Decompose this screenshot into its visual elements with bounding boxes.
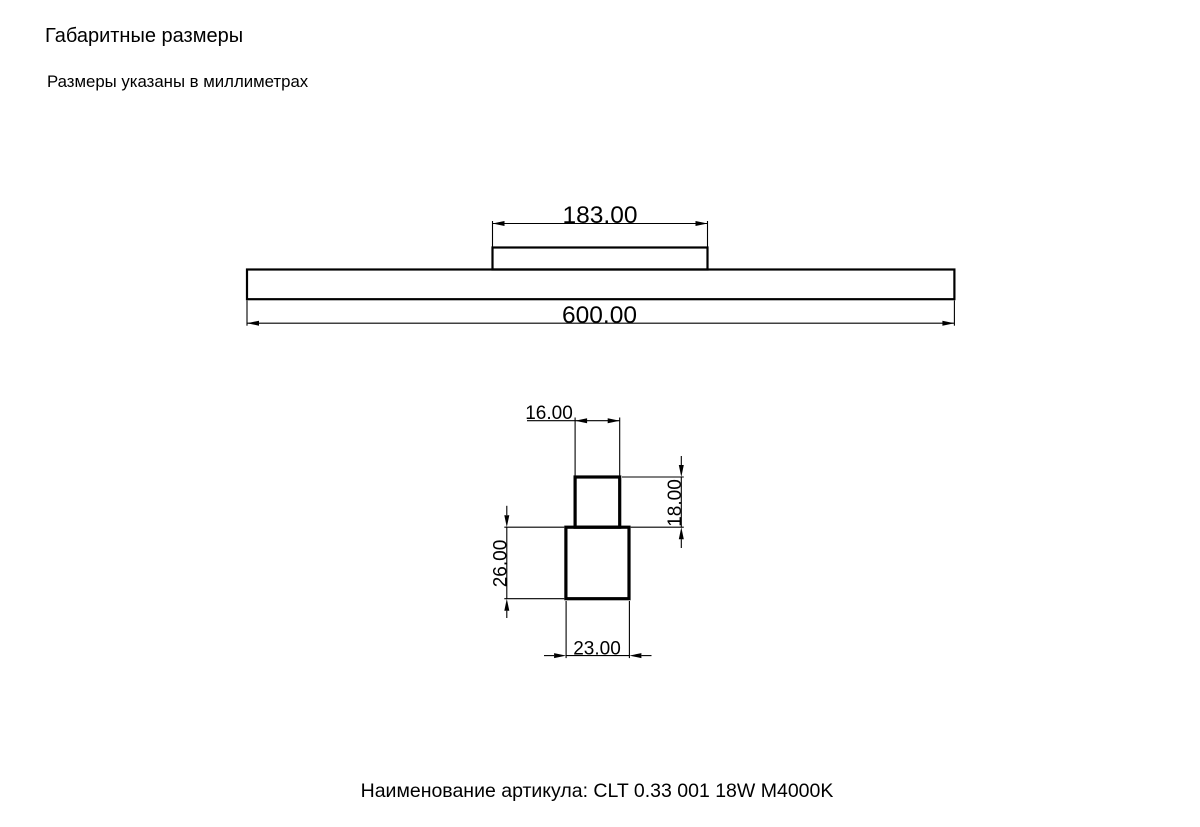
svg-text:183.00: 183.00 xyxy=(563,202,638,229)
svg-text:600.00: 600.00 xyxy=(562,302,637,329)
svg-text:Габаритные размеры: Габаритные размеры xyxy=(45,25,243,47)
svg-text:Наименование артикула: CLT 0.3: Наименование артикула: CLT 0.33 001 18W … xyxy=(361,780,834,802)
svg-text:26.00: 26.00 xyxy=(491,540,512,588)
svg-text:Размеры указаны в миллиметрах: Размеры указаны в миллиметрах xyxy=(47,72,309,91)
svg-text:16.00: 16.00 xyxy=(525,403,573,424)
svg-text:18.00: 18.00 xyxy=(665,479,686,527)
svg-text:23.00: 23.00 xyxy=(573,639,621,660)
